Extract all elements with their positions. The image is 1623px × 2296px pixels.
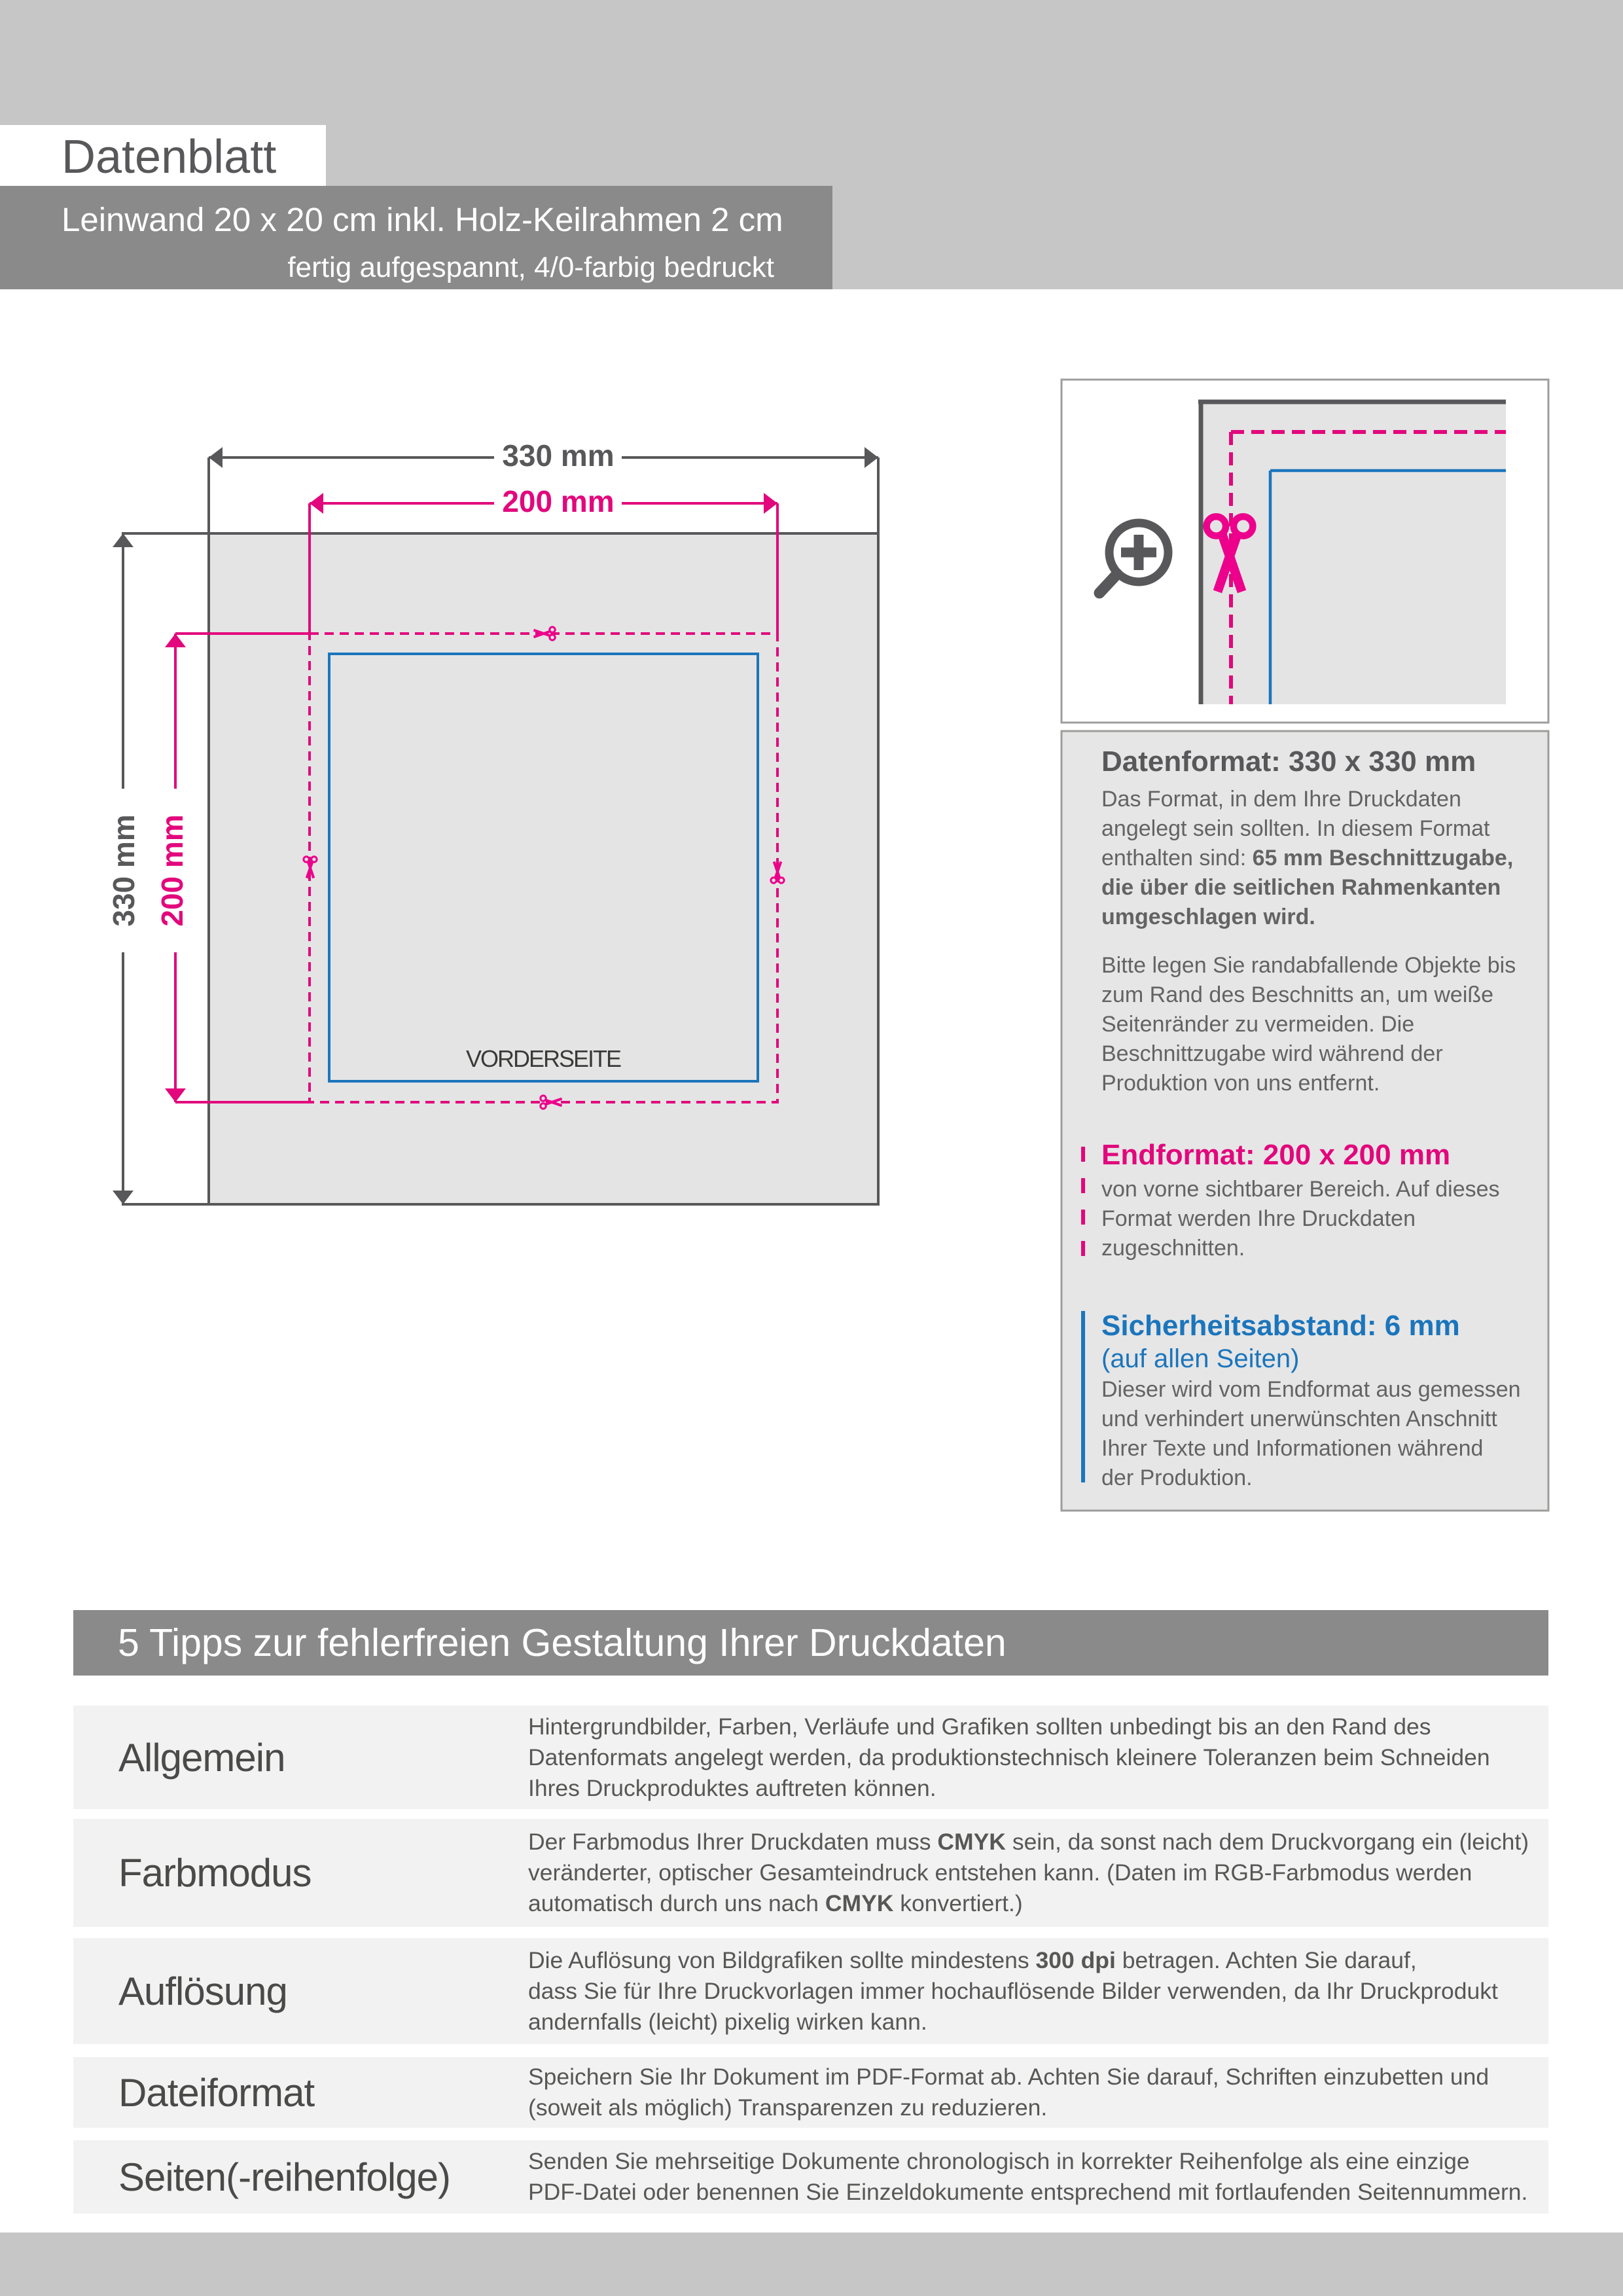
- svg-text:330 mm: 330 mm: [502, 439, 614, 473]
- svg-text:200 mm: 200 mm: [155, 814, 189, 926]
- svg-text:200 mm: 200 mm: [502, 484, 614, 518]
- svg-text:VORDERSEITE: VORDERSEITE: [466, 1045, 621, 1072]
- svg-text:330 mm: 330 mm: [107, 814, 141, 926]
